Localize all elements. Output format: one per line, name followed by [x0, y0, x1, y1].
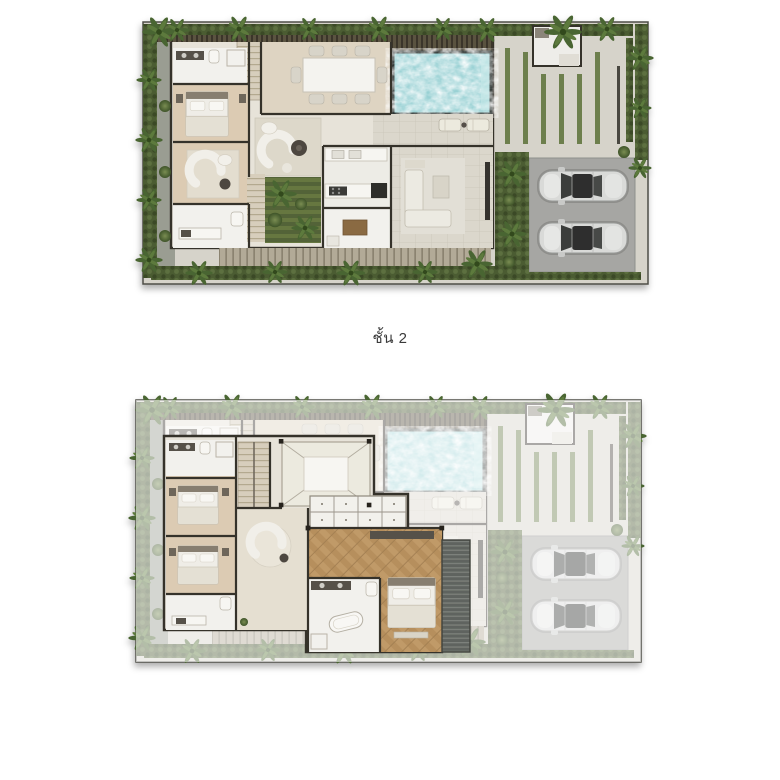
floorplan-page: ชั้น 2 — [0, 0, 780, 780]
wardrobe-console — [370, 531, 434, 539]
bedroom-b — [166, 536, 236, 594]
floor2-caption: ชั้น 2 — [0, 326, 780, 350]
second-floor-plan — [127, 389, 648, 667]
louver-screen — [442, 540, 470, 652]
bathroom-b — [166, 594, 236, 630]
bathroom-a — [166, 440, 236, 476]
floorplan-canvas — [0, 0, 780, 780]
stair-hall — [236, 508, 308, 630]
first-floor-plan — [134, 11, 655, 289]
master-bathroom — [308, 578, 380, 652]
bedroom-a — [166, 476, 236, 536]
walk-in-closet — [310, 496, 406, 528]
